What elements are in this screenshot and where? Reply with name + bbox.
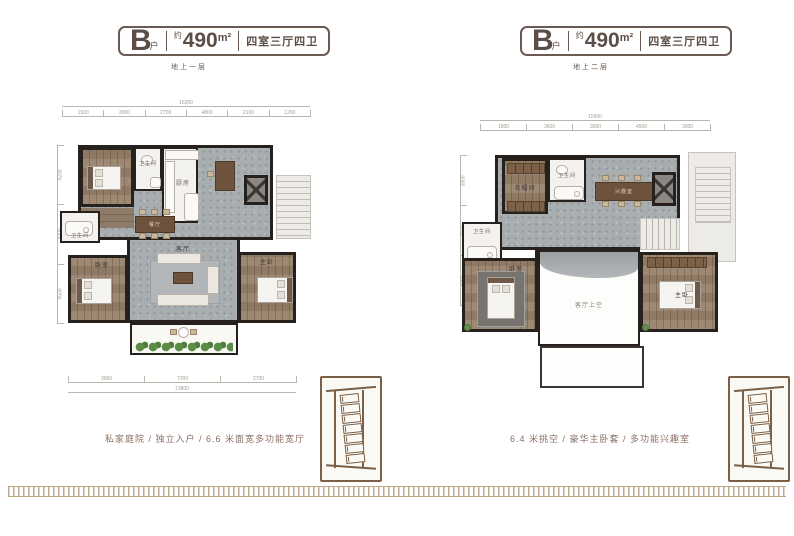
plan1-dim-total-bottom: 13800 bbox=[68, 386, 296, 393]
plan2-title-badge: B 户 约 490 m² 四室三厅四卫 bbox=[520, 26, 732, 56]
floorplan-sheet: B 户 约 490 m² 四室三厅四卫 地上一层 16200 150039002… bbox=[0, 0, 794, 536]
void-floor-edge bbox=[540, 252, 638, 278]
plan1-drawing: 16200 150039002700480021001200 420033004… bbox=[55, 98, 355, 398]
patio-table bbox=[178, 327, 189, 338]
plan1-room-count: 四室三厅四卫 bbox=[246, 33, 318, 49]
plan2-bedroom-master-label: 主卧 bbox=[675, 290, 689, 299]
plan2-area-approx: 约 bbox=[576, 30, 584, 41]
plan1-caption: 私家庭院 / 独立入户 / 6.6 米面宽多功能宽厅 bbox=[55, 432, 355, 445]
chair bbox=[602, 201, 609, 207]
plant-icon bbox=[642, 324, 649, 331]
chair bbox=[634, 201, 641, 207]
kitchen-counter bbox=[165, 150, 199, 160]
plan1-dim-segments-bottom: 390072002700 bbox=[68, 376, 297, 383]
bed bbox=[87, 166, 121, 190]
plan2-area: 约 490 m² bbox=[576, 29, 634, 53]
plan2-hobby-label: 兴趣室 bbox=[615, 188, 633, 195]
tv-cabinet bbox=[157, 253, 201, 264]
badge-divider bbox=[568, 31, 569, 51]
badge-divider bbox=[238, 31, 239, 51]
kitchen-counter bbox=[165, 161, 175, 213]
chair bbox=[163, 233, 170, 239]
courtyard-plants bbox=[135, 341, 233, 353]
plan2-area-value: 490 bbox=[585, 29, 620, 53]
hobby-table: 兴趣室 bbox=[595, 182, 653, 201]
plan2-unit-type: B 户 bbox=[532, 27, 561, 55]
desk bbox=[215, 161, 235, 191]
fret-border bbox=[8, 486, 786, 497]
plan1-living-label: 客厅 bbox=[176, 244, 190, 253]
badge-divider bbox=[640, 31, 641, 51]
plant-icon bbox=[464, 324, 471, 331]
plan2-closet-label: 衣帽间 bbox=[514, 183, 535, 192]
plan1-floor-label: 地上一层 bbox=[118, 62, 260, 72]
external-stair-core bbox=[688, 152, 736, 262]
plan1-area-value: 490 bbox=[183, 29, 218, 53]
site-road bbox=[742, 390, 744, 468]
plan1-bedroom-master-label: 主卧 bbox=[260, 257, 274, 266]
plan1-dim-segments-top: 150039002700480021001200 bbox=[62, 110, 311, 117]
plan1-bedroom-left-label: 卧室 bbox=[95, 260, 109, 269]
toilet-icon bbox=[150, 177, 161, 188]
plan2-bedroom-left-label: 卧室 bbox=[509, 264, 523, 273]
plan1-type-letter-sub: 户 bbox=[150, 39, 159, 52]
wardrobe bbox=[507, 201, 545, 212]
plan2-caption: 6.4 米挑空 / 豪华主卧套 / 多功能兴趣室 bbox=[450, 432, 750, 445]
plan1-bath-top-label: 卫生间 bbox=[139, 160, 157, 167]
chair bbox=[207, 171, 214, 177]
plan2-drawing: 15900 18003600300045003000 390036004800 … bbox=[450, 98, 760, 398]
dining-table: 餐厅 bbox=[135, 216, 175, 233]
chair bbox=[151, 233, 158, 239]
external-staircase bbox=[276, 175, 311, 239]
plan2-type-letter: B bbox=[532, 27, 554, 55]
chair bbox=[634, 175, 641, 181]
chair bbox=[151, 209, 158, 215]
bathtub-icon bbox=[554, 186, 584, 200]
elevator-shaft bbox=[244, 175, 268, 205]
chair bbox=[618, 175, 625, 181]
badge-divider bbox=[166, 31, 167, 51]
plan2-void-label: 客厅上空 bbox=[575, 300, 603, 309]
plan2-bath-top bbox=[548, 158, 586, 202]
bed bbox=[257, 277, 293, 303]
plan2-void: 客厅上空 bbox=[538, 250, 640, 346]
plan1-area-unit: m² bbox=[218, 32, 231, 44]
chair bbox=[602, 175, 609, 181]
plan1-site-map bbox=[320, 376, 382, 482]
plan2-bath-top-label: 卫生间 bbox=[558, 172, 576, 179]
plan1-area: 约 490 m² bbox=[174, 29, 232, 53]
chair bbox=[163, 209, 170, 215]
plan2-area-unit: m² bbox=[620, 32, 633, 44]
coffee-table bbox=[173, 272, 193, 284]
plan1-courtyard bbox=[130, 323, 238, 355]
chair bbox=[170, 329, 177, 335]
plan2-terrace bbox=[540, 346, 644, 388]
plan2-dim-segments-top: 18003600300045003000 bbox=[480, 124, 711, 131]
plan1-title-badge: B 户 约 490 m² 四室三厅四卫 bbox=[118, 26, 330, 56]
plan2-bath-mid-label: 卫生间 bbox=[473, 228, 491, 235]
stair-treads bbox=[695, 167, 731, 223]
bed bbox=[76, 278, 112, 304]
plan1-bath-mid-label: 卫生间 bbox=[71, 232, 89, 239]
plan1-area-approx: 约 bbox=[174, 30, 182, 41]
stove-icon bbox=[184, 193, 199, 221]
plan2-floor-label: 地上二层 bbox=[520, 62, 662, 72]
chair bbox=[139, 233, 146, 239]
plan2-room-count: 四室三厅四卫 bbox=[648, 33, 720, 49]
plan1-dining-label: 餐厅 bbox=[149, 221, 161, 228]
plan1-bedroom-elder bbox=[80, 147, 134, 207]
elevator-shaft bbox=[652, 172, 676, 206]
plan2-type-letter-sub: 户 bbox=[552, 39, 561, 52]
wardrobe bbox=[647, 257, 707, 268]
plan2-site-map bbox=[728, 376, 790, 482]
internal-staircase bbox=[640, 218, 680, 250]
sofa bbox=[207, 266, 219, 294]
chair bbox=[139, 209, 146, 215]
plan2-bedroom-left bbox=[462, 258, 538, 332]
sofa bbox=[157, 294, 209, 306]
plan1-bath-top bbox=[134, 147, 162, 191]
plan2-dim-total-top: 15900 bbox=[480, 114, 710, 121]
bed bbox=[487, 277, 515, 319]
chair bbox=[190, 329, 197, 335]
plan1-unit-type: B 户 bbox=[130, 27, 159, 55]
plan1-kitchen-label: 厨房 bbox=[176, 178, 190, 187]
site-road bbox=[334, 390, 336, 468]
plan1-type-letter: B bbox=[130, 27, 152, 55]
plan1-dim-total-top: 16200 bbox=[62, 100, 310, 107]
wardrobe bbox=[507, 163, 545, 174]
chair bbox=[618, 201, 625, 207]
